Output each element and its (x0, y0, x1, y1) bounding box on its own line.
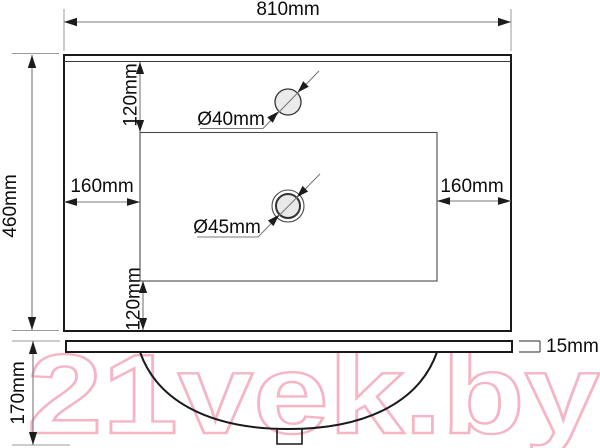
dimension-810: 810mm (64, 0, 511, 51)
arrowhead (28, 317, 36, 330)
arrowhead (28, 55, 36, 68)
dimension-label-810: 810mm (256, 0, 319, 20)
dimension-label-460: 460mm (0, 174, 21, 237)
dimension-120-bottom: 120mm (124, 267, 148, 330)
arrowhead (64, 18, 77, 26)
dimension-460: 460mm (0, 54, 59, 331)
arrowhead (498, 18, 511, 26)
rim-profile-bar (66, 341, 512, 352)
dimension-label-120-top: 120mm (121, 63, 142, 126)
dimension-label-120-bottom: 120mm (124, 267, 145, 330)
dimension-label-15: 15mm (546, 336, 599, 357)
dimension-120-top: 120mm (121, 62, 145, 132)
washbasin-dimension-drawing: 21vek.by 810mm 460mm 120mm (0, 0, 600, 448)
dimension-label-160-left: 160mm (70, 176, 133, 197)
drawing-canvas: 21vek.by 810mm 460mm 120mm (0, 0, 600, 448)
dimension-label-160-right: 160mm (440, 176, 503, 197)
diameter-label-45: Ø45mm (193, 217, 261, 238)
diameter-label-40: Ø40mm (197, 109, 265, 130)
dimension-label-170: 170mm (8, 361, 29, 424)
dimension-160-right: 160mm (437, 176, 511, 205)
